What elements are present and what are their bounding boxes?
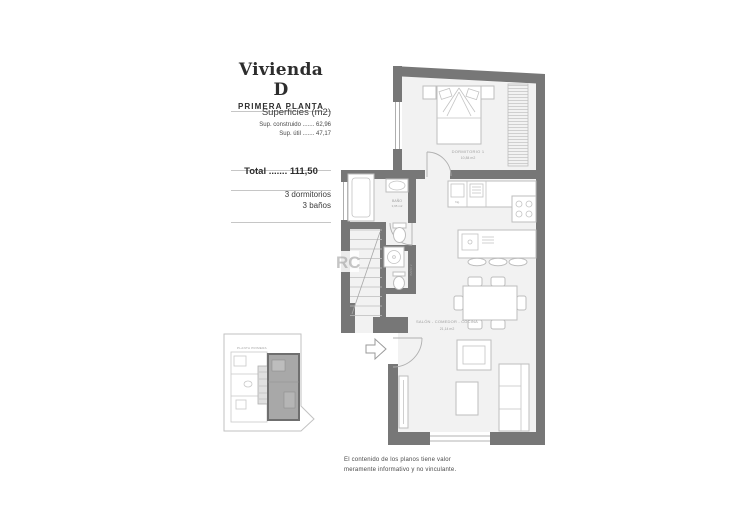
bedroom-label: DORMITORIO 1 bbox=[452, 149, 485, 154]
fridge-label: frig. bbox=[455, 200, 460, 204]
surfaces-heading: Superficies (m2) bbox=[231, 107, 331, 118]
bath-area: 3,95 m2 bbox=[392, 204, 403, 208]
feature-banos: 3 baños bbox=[231, 201, 331, 212]
inset-key-plan: PLANTA PRIMERA bbox=[224, 334, 314, 431]
living-label: SALÓN - COMEDOR - COCINA bbox=[416, 319, 478, 324]
divider bbox=[231, 222, 331, 223]
living-area: 21,14 m2 bbox=[440, 327, 455, 331]
bath2-label: BAÑO 2 bbox=[408, 264, 413, 275]
inset-caption: PLANTA PRIMERA bbox=[237, 346, 267, 350]
inset-unit-highlighted bbox=[268, 354, 299, 420]
spec-panel: Vivienda D PRIMERA PLANTA bbox=[231, 60, 331, 111]
total-line: Total ....... 111,50 bbox=[231, 166, 331, 177]
watermark-text: RC bbox=[336, 253, 361, 272]
floorplan-sheet: { "panel": { "title": "Vivienda D", "sub… bbox=[0, 0, 756, 528]
disclaimer-text: El contenido de los planos tiene valor m… bbox=[344, 456, 494, 475]
unit-title: Vivienda D bbox=[231, 60, 331, 100]
floor-plan-canvas: DORMITORIO 1 10,84 m2 BAÑO 3,95 m2 BAÑO … bbox=[0, 0, 756, 528]
bedroom-area: 10,84 m2 bbox=[461, 156, 476, 160]
main-floor-plan: DORMITORIO 1 10,84 m2 BAÑO 3,95 m2 BAÑO … bbox=[333, 66, 545, 445]
entry-arrow-icon bbox=[366, 339, 386, 359]
feature-dormitorios: 3 dormitorios bbox=[231, 190, 331, 201]
surface-line-util: Sup. útil ....... 47,17 bbox=[231, 130, 331, 139]
surface-line-construido: Sup. construido ....... 62,96 bbox=[231, 121, 331, 130]
bath-label: BAÑO bbox=[392, 198, 402, 203]
watermark: RC bbox=[333, 251, 361, 272]
